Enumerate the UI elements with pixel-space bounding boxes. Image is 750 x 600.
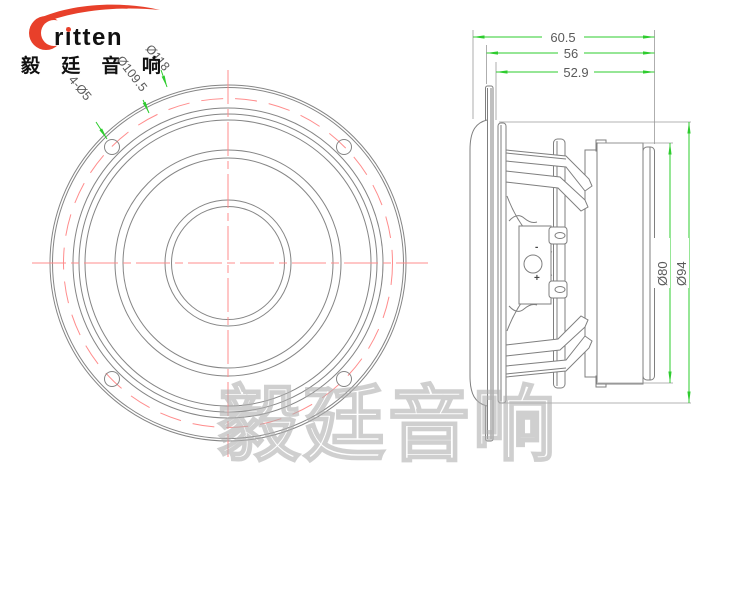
terminal-minus-label: - [535,242,538,253]
brand-i-dot [66,27,71,32]
dim-total-depth: 60.5 [550,30,575,45]
brand-chinese-name: 毅 廷 音 响 [21,51,169,78]
side-view: - + [470,86,655,441]
center-crosshair [32,70,428,457]
basket-front-ring [498,123,506,403]
brand-name: ritten [54,24,123,52]
front-gasket [470,120,487,406]
basket-struts-bottom [506,316,592,377]
dim-frame-depth: 56 [564,46,578,61]
basket-struts-top [506,150,592,211]
dim-basket-depth: 52.9 [563,65,588,80]
front-view [32,70,428,457]
back-plate [643,147,655,380]
dim-rear-ring-diameter: Ø94 [674,261,689,286]
magnet-assembly [585,140,655,387]
drawing-canvas: 4-Ø5 Ø109.5 Ø118 [0,0,750,600]
magnet [597,143,643,384]
brand-logo: ritten 毅 廷 音 响 [0,0,230,90]
terminal-hole [524,255,542,273]
dim-magnet-diameter: Ø80 [655,261,670,286]
leader-mounting-holes [96,122,107,139]
terminal-plus-label: + [534,273,540,284]
